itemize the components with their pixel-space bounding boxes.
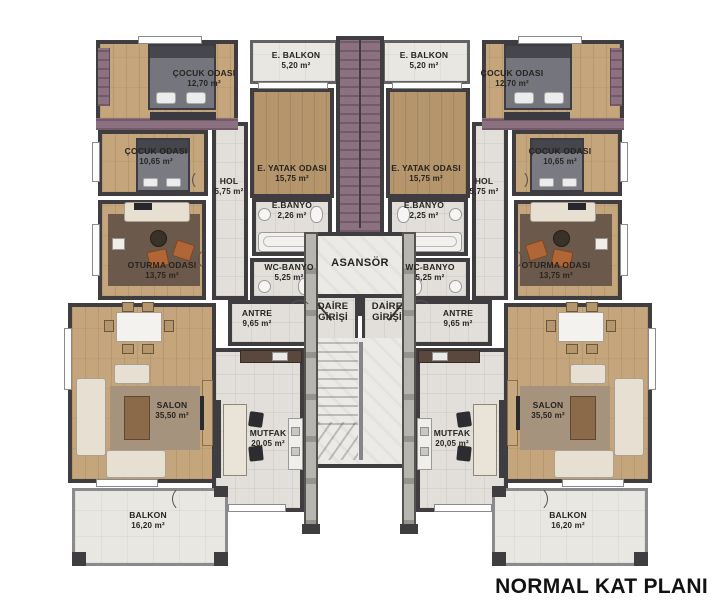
light-shaft bbox=[336, 36, 384, 232]
core-wall-right bbox=[402, 232, 416, 528]
balcony-slider bbox=[96, 479, 158, 487]
core-graphics bbox=[0, 0, 720, 610]
stair-treads bbox=[318, 342, 358, 426]
window bbox=[92, 142, 100, 182]
elevator-shaft bbox=[314, 232, 406, 298]
stair-winders bbox=[318, 422, 358, 460]
window bbox=[64, 328, 72, 390]
door-arc-oturma bbox=[198, 248, 220, 270]
balcony-post bbox=[214, 486, 228, 497]
core-wall-left bbox=[304, 232, 318, 528]
balcony-post bbox=[214, 552, 228, 566]
stair-stringer bbox=[359, 342, 363, 460]
window bbox=[92, 224, 100, 276]
door-arc-balcony bbox=[172, 486, 198, 512]
door-arc-antre bbox=[288, 300, 312, 324]
column-cap bbox=[302, 524, 320, 534]
window bbox=[138, 36, 202, 44]
balcony-post bbox=[72, 552, 86, 566]
window bbox=[228, 504, 286, 512]
stairwell bbox=[314, 338, 406, 468]
shaft-divider bbox=[359, 40, 361, 228]
plan-title: NORMAL KAT PLANI bbox=[495, 575, 708, 599]
vestibule-stub-wall bbox=[356, 298, 364, 316]
column-cap bbox=[400, 524, 418, 534]
balcony-window bbox=[258, 82, 328, 89]
floor-plan: E. BALKON5,20 m² ÇOCUK ODASI12,70 m² ÇOC… bbox=[0, 0, 720, 610]
door-arc-cocuk bbox=[192, 170, 212, 190]
